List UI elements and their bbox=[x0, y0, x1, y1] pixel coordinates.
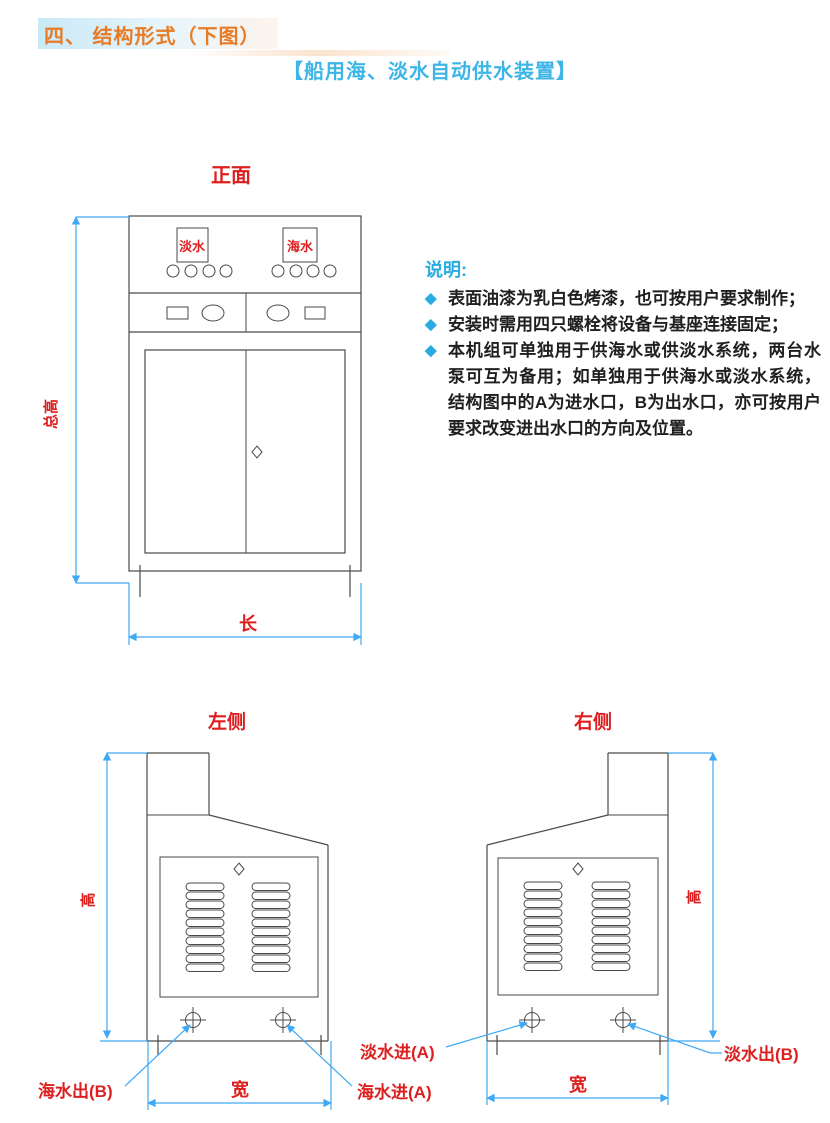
freshwater-inlet-label: 淡水进(A) bbox=[360, 1042, 435, 1062]
louver-vent bbox=[186, 883, 224, 972]
freshwater-outlet-label: 淡水出(B) bbox=[724, 1044, 799, 1064]
right-view-dimensions: 高 宽 bbox=[487, 753, 720, 1105]
front-doors bbox=[145, 350, 345, 553]
seawater-inlet-label: 海水进(A) bbox=[357, 1082, 432, 1102]
right-view-label: 右侧 bbox=[573, 710, 612, 733]
height-dimension-label: 高 bbox=[685, 889, 703, 904]
front-cabinet-outline bbox=[129, 216, 361, 597]
door-handle bbox=[573, 863, 583, 875]
seawater-outlet-label: 海水出(B) bbox=[38, 1081, 113, 1101]
louver-vent bbox=[524, 882, 562, 971]
note-text: 表面油漆为乳白色烤漆，也可按用户要求制作； bbox=[448, 289, 805, 308]
left-view-dimensions: 高 宽 bbox=[79, 753, 331, 1110]
section-header: 四、 结构形式（下图） bbox=[44, 20, 261, 49]
note-item: ◆ 本机组可单独用于供海水或供淡水系统，两台水泵可互为备用；如单独用于供海水或淡… bbox=[425, 338, 821, 442]
seawater-display-label: 海水 bbox=[287, 239, 314, 254]
note-item: ◆ 表面油漆为乳白色烤漆，也可按用户要求制作； bbox=[425, 286, 821, 312]
page-title: 【船用海、淡水自动供水装置】 bbox=[283, 55, 577, 84]
front-display-panels: 淡水 海水 bbox=[167, 228, 336, 277]
front-dimensions: 总高 长 bbox=[42, 217, 361, 645]
door-handle bbox=[252, 446, 262, 458]
side-views-drawing: 左侧 bbox=[0, 690, 830, 1123]
diamond-bullet-icon: ◆ bbox=[425, 338, 437, 364]
manual-page: 四、 结构形式（下图） 【船用海、淡水自动供水装置】 说明: ◆ 表面油漆为乳白… bbox=[0, 0, 830, 1123]
height-dimension-label: 总高 bbox=[42, 399, 60, 429]
pipe-port-symbol bbox=[519, 1007, 545, 1033]
note-text: 安装时需用四只螺栓将设备与基座连接固定； bbox=[448, 315, 788, 334]
width-dimension-label: 宽 bbox=[231, 1079, 249, 1100]
height-dimension-label: 高 bbox=[79, 892, 97, 907]
note-text: 本机组可单独用于供海水或供淡水系统，两台水泵可互为备用；如单独用于供海水或淡水系… bbox=[448, 341, 821, 438]
notes-heading: 说明: bbox=[425, 256, 821, 282]
indicator-lights bbox=[167, 265, 336, 277]
left-view-body bbox=[147, 753, 328, 1055]
diamond-bullet-icon: ◆ bbox=[425, 312, 437, 338]
notes-block: 说明: ◆ 表面油漆为乳白色烤漆，也可按用户要求制作； ◆ 安装时需用四只螺栓将… bbox=[425, 256, 821, 442]
length-dimension-label: 长 bbox=[239, 614, 258, 634]
right-view-body bbox=[487, 753, 668, 1055]
pipe-port-symbol bbox=[610, 1007, 636, 1033]
note-item: ◆ 安装时需用四只螺栓将设备与基座连接固定； bbox=[425, 312, 821, 338]
door-handle bbox=[234, 863, 244, 875]
freshwater-display-label: 淡水 bbox=[179, 239, 206, 254]
pipe-port-symbol bbox=[180, 1007, 206, 1033]
louver-vent bbox=[252, 883, 290, 972]
width-dimension-label: 宽 bbox=[569, 1074, 587, 1095]
front-view-label: 正面 bbox=[211, 165, 251, 187]
left-view-label: 左侧 bbox=[208, 710, 246, 733]
diamond-bullet-icon: ◆ bbox=[425, 286, 437, 312]
front-view-drawing: 正面 淡水 海水 bbox=[30, 150, 410, 655]
louver-vent bbox=[592, 882, 630, 971]
